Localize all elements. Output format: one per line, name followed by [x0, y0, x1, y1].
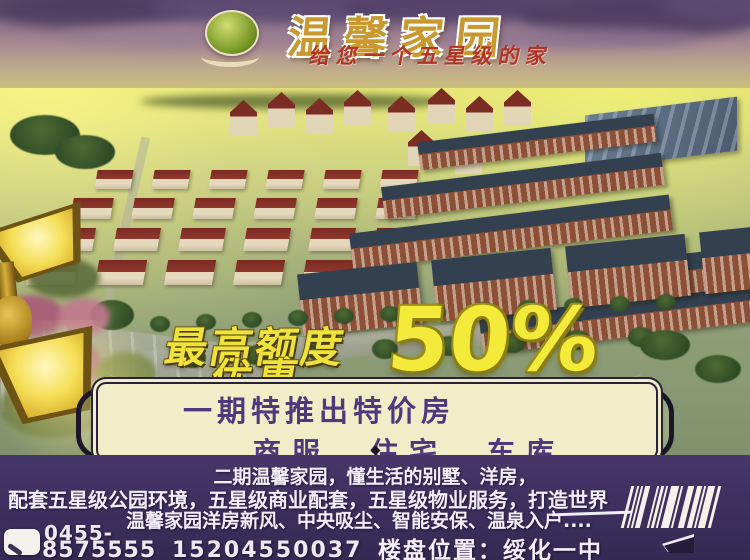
villa-house [192, 198, 236, 219]
window-strip [702, 246, 750, 294]
villa-house [322, 170, 361, 189]
villa-house [95, 260, 147, 285]
tree-cluster [640, 330, 690, 360]
phone-icon [4, 529, 40, 555]
villa-house [164, 260, 216, 285]
tree [656, 294, 676, 310]
description-line3: 温馨家园洋房新风、中央吸尘、智能安保、温泉入户.... [126, 506, 592, 533]
real-estate-poster: 温馨家园 给您一个五星级的家 最高额度 优惠 50% 一期特推出特价房 商服、住… [0, 0, 750, 560]
poster-subtitle: 给您一个五星级的家 [307, 40, 555, 70]
banner-line1: 一期特推出特价房 [40, 388, 598, 430]
villa-house [113, 228, 161, 251]
barcode [621, 486, 750, 528]
location-label: 楼盘位置： [378, 538, 503, 560]
location-value: 绥化一中 [503, 538, 603, 560]
villa-house [233, 260, 285, 285]
front-apartment [699, 220, 750, 294]
tree-cluster [695, 355, 741, 383]
villa-house [314, 198, 358, 219]
tree [610, 296, 630, 312]
pointed-villa [504, 90, 531, 126]
villa-house [243, 228, 291, 251]
villa-house [208, 170, 247, 189]
villa-house [178, 228, 226, 251]
logo [205, 10, 259, 67]
phone-number: 8575555 [42, 538, 156, 560]
villa-house [265, 170, 304, 189]
logo-cradle [201, 46, 259, 67]
tree-cluster [55, 135, 115, 169]
pointed-villa [466, 96, 493, 132]
villa-house [253, 198, 297, 219]
villa-house [94, 170, 133, 189]
villa-house [131, 198, 175, 219]
location-line: 楼盘位置：绥化一中 [378, 531, 603, 560]
villa-house [151, 170, 190, 189]
mobile-number: 15204550037 [172, 538, 362, 560]
pointed-villa [428, 88, 455, 124]
